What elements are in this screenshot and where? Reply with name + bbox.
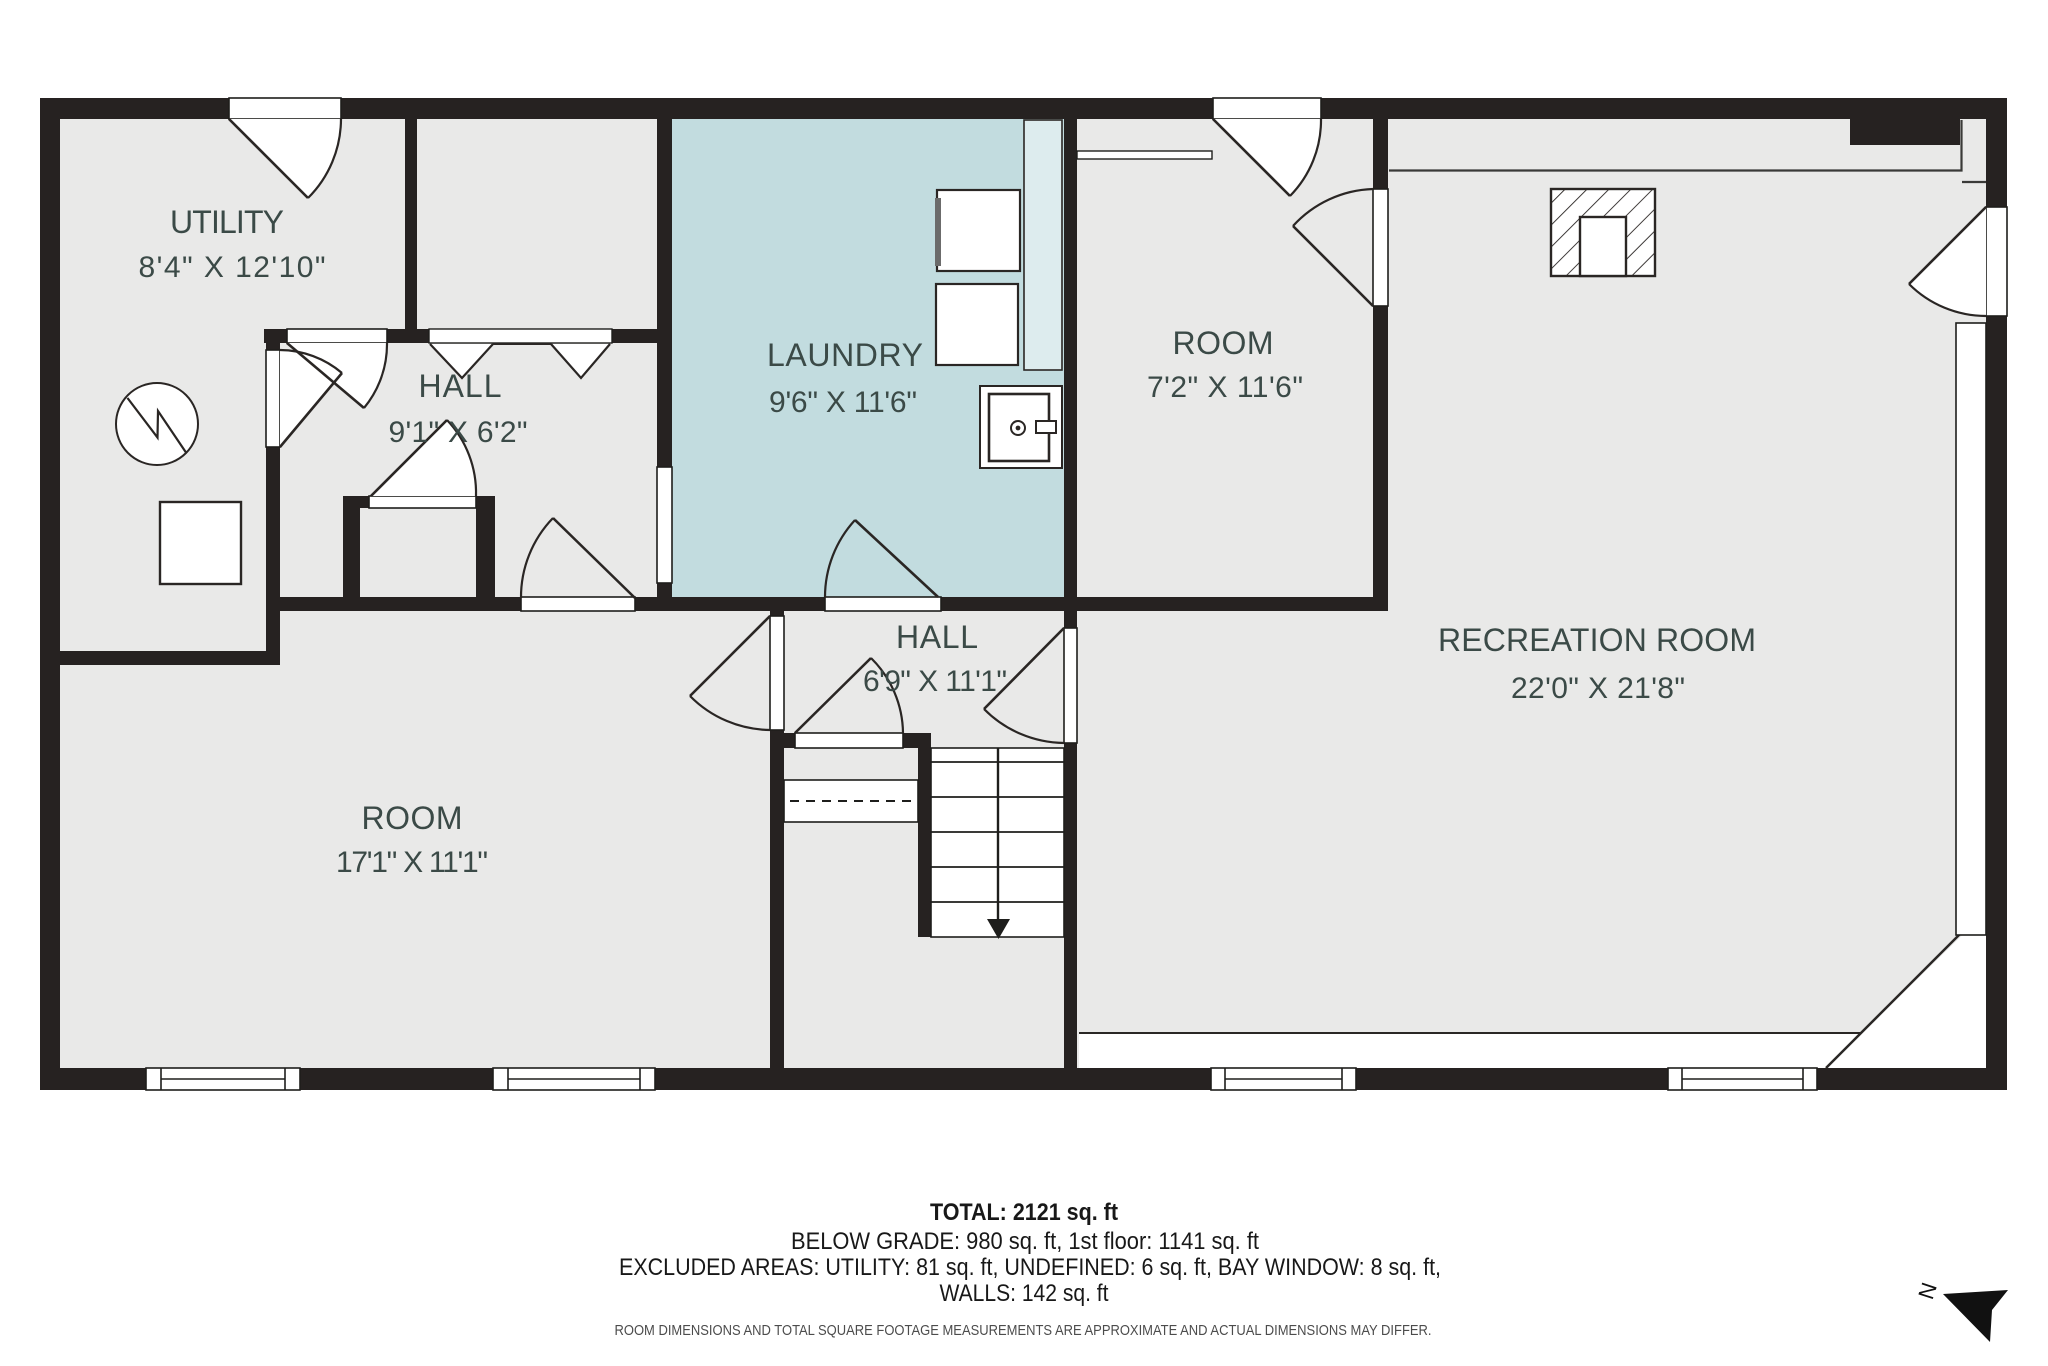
svg-text:ROOM DIMENSIONS AND TOTAL SQUA: ROOM DIMENSIONS AND TOTAL SQUARE FOOTAGE… [615, 1322, 1432, 1339]
svg-text:HALL: HALL [419, 368, 502, 404]
svg-text:ROOM: ROOM [1173, 325, 1274, 361]
svg-text:EXCLUDED AREAS: UTILITY: 81 sq: EXCLUDED AREAS: UTILITY: 81 sq. ft, UNDE… [619, 1254, 1441, 1281]
svg-text:WALLS: 142 sq. ft: WALLS: 142 sq. ft [940, 1280, 1109, 1307]
svg-text:HALL: HALL [896, 619, 978, 655]
svg-text:22'0" X 21'8": 22'0" X 21'8" [1511, 672, 1685, 705]
svg-text:TOTAL: 2121 sq. ft: TOTAL: 2121 sq. ft [930, 1199, 1118, 1226]
svg-text:17'1" X 11'1": 17'1" X 11'1" [336, 846, 488, 879]
svg-text:6'9" X 11'1": 6'9" X 11'1" [863, 665, 1007, 698]
svg-text:LAUNDRY: LAUNDRY [767, 337, 923, 373]
svg-text:9'1" X 6'2": 9'1" X 6'2" [389, 416, 528, 449]
svg-text:ROOM: ROOM [362, 800, 463, 836]
svg-text:9'6" X 11'6": 9'6" X 11'6" [769, 386, 917, 419]
svg-text:7'2" X 11'6": 7'2" X 11'6" [1147, 371, 1303, 404]
svg-text:BELOW GRADE: 980 sq. ft, 1st f: BELOW GRADE: 980 sq. ft, 1st floor: 1141… [791, 1228, 1259, 1255]
svg-text:UTILITY: UTILITY [170, 204, 284, 240]
svg-text:RECREATION ROOM: RECREATION ROOM [1438, 622, 1756, 658]
svg-text:8'4" X 12'10": 8'4" X 12'10" [139, 251, 326, 284]
svg-text:N: N [1913, 1279, 1942, 1302]
